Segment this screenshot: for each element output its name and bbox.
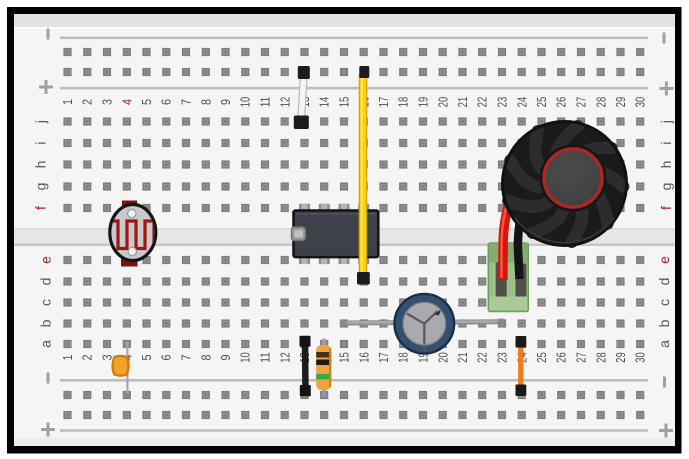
svg-text:b: b bbox=[656, 319, 672, 327]
svg-text:j: j bbox=[658, 120, 674, 124]
svg-text:e: e bbox=[656, 256, 672, 264]
svg-text:j: j bbox=[33, 120, 49, 124]
svg-text:14: 14 bbox=[317, 97, 332, 108]
svg-text:17: 17 bbox=[376, 352, 391, 363]
svg-text:3: 3 bbox=[100, 355, 115, 361]
svg-text:28: 28 bbox=[593, 352, 608, 363]
svg-text:9: 9 bbox=[218, 355, 233, 361]
svg-text:26: 26 bbox=[554, 97, 569, 108]
svg-text:8: 8 bbox=[198, 99, 213, 105]
svg-text:c: c bbox=[656, 299, 672, 306]
svg-text:15: 15 bbox=[337, 97, 352, 108]
svg-text:1: 1 bbox=[60, 355, 75, 361]
svg-text:30: 30 bbox=[633, 97, 648, 108]
svg-text:11: 11 bbox=[258, 352, 273, 363]
svg-text:30: 30 bbox=[633, 352, 648, 363]
svg-text:1: 1 bbox=[60, 99, 75, 105]
svg-text:i: i bbox=[33, 141, 49, 144]
svg-text:17: 17 bbox=[376, 97, 391, 108]
svg-text:g: g bbox=[658, 183, 674, 191]
svg-text:4: 4 bbox=[119, 99, 134, 105]
svg-text:e: e bbox=[38, 256, 54, 264]
svg-text:24: 24 bbox=[514, 97, 529, 108]
svg-text:9: 9 bbox=[218, 99, 233, 105]
svg-text:27: 27 bbox=[574, 97, 589, 108]
svg-text:10: 10 bbox=[238, 97, 253, 108]
svg-text:2: 2 bbox=[80, 99, 95, 105]
svg-text:g: g bbox=[33, 183, 49, 191]
svg-text:2: 2 bbox=[80, 355, 95, 361]
svg-text:7: 7 bbox=[179, 99, 194, 105]
svg-text:i: i bbox=[658, 141, 674, 144]
svg-text:d: d bbox=[656, 278, 672, 286]
svg-text:h: h bbox=[33, 161, 49, 169]
svg-text:5: 5 bbox=[139, 99, 154, 105]
svg-text:25: 25 bbox=[534, 97, 549, 108]
svg-text:20: 20 bbox=[435, 352, 450, 363]
svg-text:28: 28 bbox=[593, 97, 608, 108]
svg-text:15: 15 bbox=[337, 352, 352, 363]
svg-text:11: 11 bbox=[258, 97, 273, 108]
svg-text:5: 5 bbox=[139, 355, 154, 361]
svg-text:f: f bbox=[658, 206, 674, 210]
svg-text:d: d bbox=[38, 278, 54, 286]
svg-text:a: a bbox=[38, 340, 54, 348]
svg-text:21: 21 bbox=[455, 97, 470, 108]
svg-text:23: 23 bbox=[495, 97, 510, 108]
svg-text:12: 12 bbox=[277, 97, 292, 108]
svg-text:h: h bbox=[658, 161, 674, 169]
svg-text:10: 10 bbox=[238, 352, 253, 363]
svg-text:c: c bbox=[38, 299, 54, 306]
svg-text:19: 19 bbox=[416, 97, 431, 108]
svg-text:f: f bbox=[33, 206, 49, 210]
svg-text:22: 22 bbox=[475, 97, 490, 108]
svg-text:6: 6 bbox=[159, 99, 174, 105]
svg-text:12: 12 bbox=[277, 352, 292, 363]
svg-text:7: 7 bbox=[179, 355, 194, 361]
svg-text:22: 22 bbox=[475, 352, 490, 363]
svg-text:a: a bbox=[656, 340, 672, 348]
svg-text:29: 29 bbox=[613, 352, 628, 363]
svg-text:26: 26 bbox=[554, 352, 569, 363]
svg-text:25: 25 bbox=[534, 352, 549, 363]
svg-text:23: 23 bbox=[495, 352, 510, 363]
svg-text:6: 6 bbox=[159, 355, 174, 361]
svg-text:8: 8 bbox=[198, 355, 213, 361]
svg-text:3: 3 bbox=[100, 99, 115, 105]
svg-text:b: b bbox=[38, 319, 54, 327]
svg-text:20: 20 bbox=[435, 97, 450, 108]
svg-text:27: 27 bbox=[574, 352, 589, 363]
svg-text:18: 18 bbox=[396, 97, 411, 108]
svg-text:16: 16 bbox=[356, 352, 371, 363]
svg-text:18: 18 bbox=[396, 352, 411, 363]
svg-text:29: 29 bbox=[613, 97, 628, 108]
svg-text:21: 21 bbox=[455, 352, 470, 363]
